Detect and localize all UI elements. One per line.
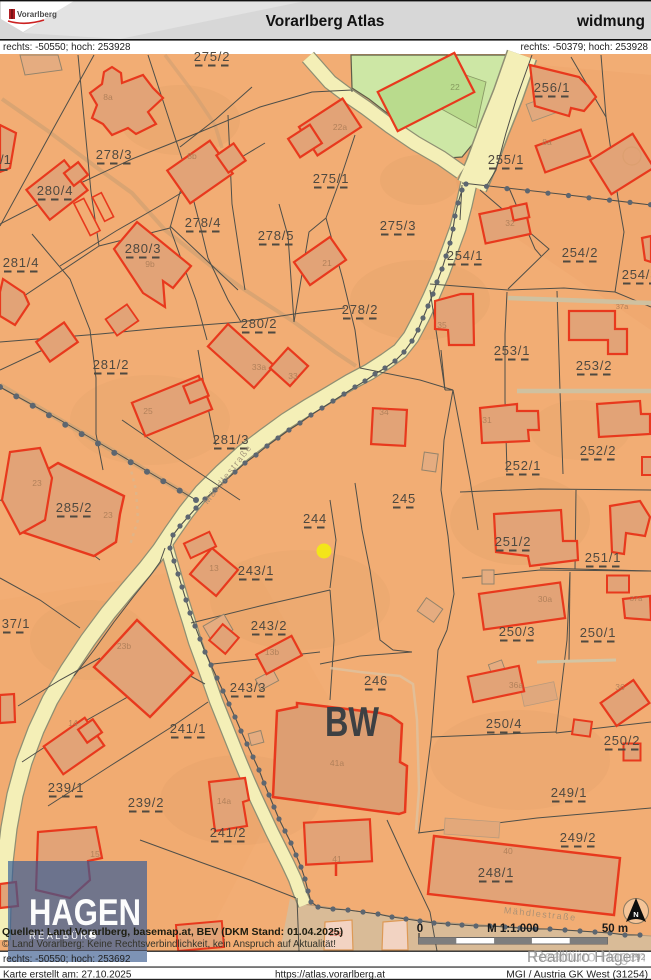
svg-text:23: 23: [103, 510, 113, 520]
svg-text:278/3: 278/3: [96, 147, 133, 162]
svg-text:© Land Vorarlberg: Keine Recht: © Land Vorarlberg: Keine Rechtsverbindli…: [2, 939, 336, 950]
svg-text:rechts: -50550; hoch: 253692: rechts: -50550; hoch: 253692: [3, 954, 130, 965]
svg-text:250/4: 250/4: [486, 716, 523, 731]
svg-text:15: 15: [90, 849, 100, 859]
svg-text:22a: 22a: [333, 122, 347, 132]
svg-text:36a: 36a: [509, 680, 523, 690]
svg-text:92: 92: [636, 952, 646, 962]
svg-text:249/2: 249/2: [560, 830, 597, 845]
svg-text:281/4: 281/4: [3, 255, 40, 270]
svg-text:Quellen: Land Vorarlberg, base: Quellen: Land Vorarlberg, basemap.at, BE…: [2, 926, 343, 938]
svg-text:BW: BW: [325, 698, 380, 745]
svg-text:34: 34: [379, 407, 389, 417]
svg-text:254/2: 254/2: [562, 245, 599, 260]
svg-text:8b: 8b: [187, 151, 197, 161]
svg-text:280/4: 280/4: [37, 183, 74, 198]
svg-text:MGI / Austria GK West (31254): MGI / Austria GK West (31254): [506, 970, 648, 980]
svg-text:249/1: 249/1: [551, 785, 588, 800]
svg-text:13: 13: [209, 563, 219, 573]
svg-text:N: N: [633, 910, 638, 919]
svg-text:41a: 41a: [330, 758, 344, 768]
svg-text:50 m: 50 m: [602, 923, 628, 935]
svg-text:8a: 8a: [103, 92, 113, 102]
svg-text:281/2: 281/2: [93, 357, 130, 372]
svg-text:23: 23: [32, 478, 42, 488]
svg-text:245: 245: [392, 491, 416, 506]
svg-text:rechts: -50550; hoch: 253928: rechts: -50550; hoch: 253928: [3, 42, 131, 53]
svg-text:243/2: 243/2: [251, 618, 288, 633]
svg-text:244: 244: [303, 511, 327, 526]
svg-text:252/2: 252/2: [580, 443, 617, 458]
svg-text:280/2: 280/2: [241, 316, 278, 331]
svg-text:254/3: 254/3: [622, 267, 651, 282]
svg-text:Karte erstellt am: 27.10.2025: Karte erstellt am: 27.10.2025: [3, 970, 132, 980]
svg-text:/1: /1: [0, 152, 11, 167]
svg-text:285/2: 285/2: [56, 500, 93, 515]
svg-text:250/1: 250/1: [580, 625, 617, 640]
svg-text:40: 40: [503, 846, 513, 856]
svg-text:251/2: 251/2: [495, 534, 532, 549]
svg-text:31: 31: [482, 415, 492, 425]
svg-text:250/2: 250/2: [604, 733, 641, 748]
svg-text:9b: 9b: [145, 259, 155, 269]
svg-text:241/2: 241/2: [210, 825, 247, 840]
svg-text:278/4: 278/4: [185, 215, 222, 230]
svg-text:253/2: 253/2: [576, 358, 613, 373]
svg-text:248/1: 248/1: [478, 865, 515, 880]
svg-text:33: 33: [288, 371, 298, 381]
svg-text:280/3: 280/3: [125, 241, 162, 256]
svg-text:Vorarlberg: Vorarlberg: [17, 10, 57, 19]
svg-text:32: 32: [505, 218, 515, 228]
svg-text:30a: 30a: [538, 594, 552, 604]
svg-text:widmung: widmung: [576, 13, 645, 30]
svg-text:37a: 37a: [616, 302, 629, 311]
svg-text:37/1: 37/1: [2, 616, 31, 631]
svg-text:Vorarlberg Atlas: Vorarlberg Atlas: [266, 13, 385, 30]
svg-text:Realbüro Hagen: Realbüro Hagen: [533, 949, 646, 966]
svg-text:246: 246: [364, 673, 388, 688]
svg-text:243/1: 243/1: [238, 563, 275, 578]
svg-text:35: 35: [437, 320, 447, 330]
svg-text:14a: 14a: [217, 796, 231, 806]
svg-text:254/1: 254/1: [447, 248, 484, 263]
svg-text:239/1: 239/1: [48, 780, 85, 795]
svg-text:23b: 23b: [117, 641, 131, 651]
svg-text:275/1: 275/1: [313, 171, 350, 186]
svg-text:0: 0: [417, 923, 423, 935]
svg-text:252/1: 252/1: [505, 458, 542, 473]
svg-text:14: 14: [68, 718, 78, 728]
svg-text:13b: 13b: [265, 647, 279, 657]
svg-text:37a: 37a: [630, 594, 643, 603]
svg-text:25: 25: [143, 406, 153, 416]
svg-text:8a: 8a: [542, 137, 552, 147]
svg-text:278/2: 278/2: [342, 302, 379, 317]
svg-text:255/1: 255/1: [488, 152, 525, 167]
svg-text:https://atlas.vorarlberg.at: https://atlas.vorarlberg.at: [275, 970, 385, 980]
svg-text:rechts: -50379; hoch: 253928: rechts: -50379; hoch: 253928: [521, 42, 649, 53]
svg-text:250/3: 250/3: [499, 624, 536, 639]
svg-text:278/5: 278/5: [258, 228, 295, 243]
svg-text:275/2: 275/2: [194, 49, 231, 64]
svg-text:36: 36: [615, 682, 625, 692]
svg-text:41: 41: [332, 854, 342, 864]
svg-text:22: 22: [450, 82, 460, 92]
svg-text:275/3: 275/3: [380, 218, 417, 233]
svg-text:21: 21: [322, 258, 332, 268]
svg-text:253/1: 253/1: [494, 343, 531, 358]
svg-text:239/2: 239/2: [128, 795, 165, 810]
svg-text:243/3: 243/3: [230, 680, 267, 695]
svg-text:33a: 33a: [252, 362, 266, 372]
svg-text:256/1: 256/1: [534, 80, 571, 95]
svg-text:M 1:1.000: M 1:1.000: [487, 923, 539, 935]
svg-text:251/1: 251/1: [585, 550, 622, 565]
svg-text:241/1: 241/1: [170, 721, 207, 736]
